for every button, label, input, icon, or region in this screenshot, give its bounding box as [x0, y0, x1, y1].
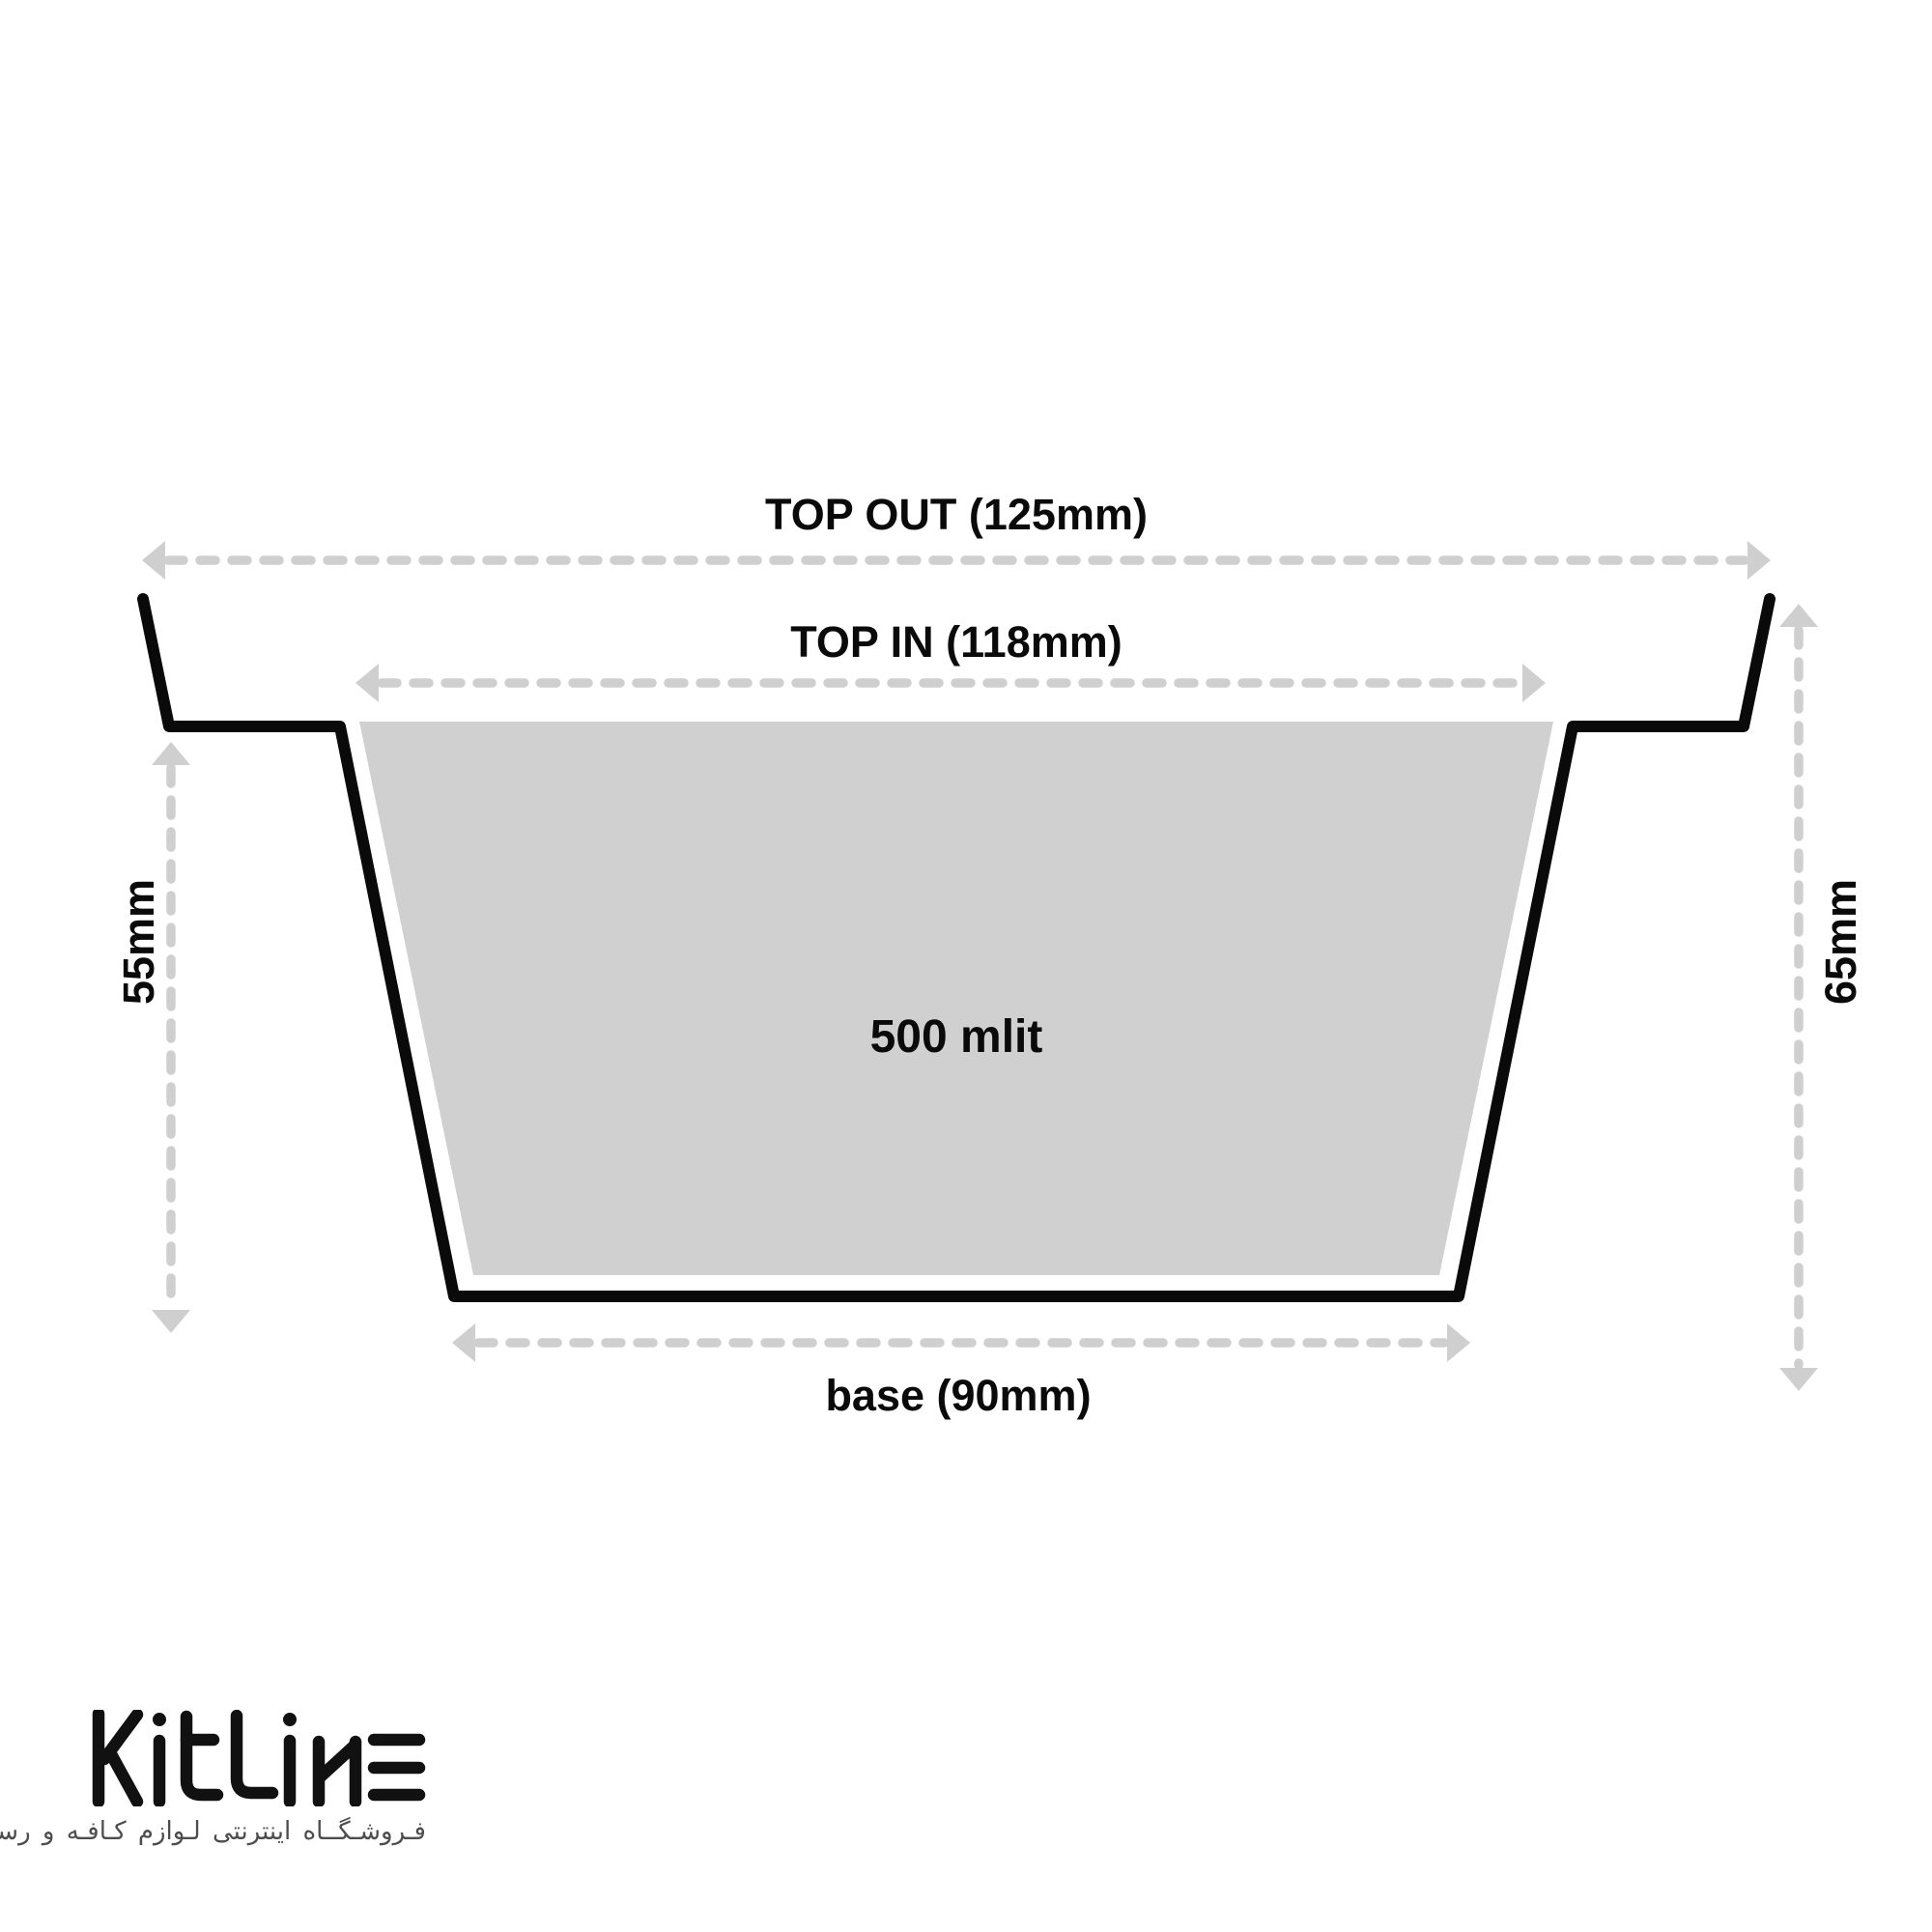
base-arrowhead-right — [1447, 1323, 1470, 1362]
logo-i1-dot — [153, 1713, 166, 1726]
top-out-label: TOP OUT (125mm) — [765, 490, 1148, 539]
logo-k-lower-diagonal — [110, 1752, 137, 1802]
container-cross-section-diagram: TOP OUT (125mm) TOP IN (118mm) 500 mlit … — [0, 0, 1932, 1932]
top-out-arrowhead-right — [1747, 541, 1771, 580]
brand-tagline: فـروشـگــاه اینترنتی لـوازم کـافـه و رست… — [92, 1817, 426, 1846]
outer-height-arrowhead-top — [1779, 604, 1818, 627]
outer-height-label: 65mm — [1816, 879, 1865, 1005]
top-in-dimension: TOP IN (118mm) — [355, 617, 1546, 702]
inner-height-label: 55mm — [114, 879, 163, 1005]
outer-height-dimension: 65mm — [1779, 604, 1865, 1391]
volume-label: 500 mlit — [870, 1011, 1043, 1063]
inner-height-arrowhead-top — [152, 742, 190, 765]
product-dimension-sheet: TOP OUT (125mm) TOP IN (118mm) 500 mlit … — [0, 0, 1932, 1932]
outer-height-arrowhead-bottom — [1779, 1368, 1818, 1391]
kitline-logo — [92, 1710, 426, 1806]
base-label: base (90mm) — [825, 1371, 1091, 1420]
branding-block: فـروشـگــاه اینترنتی لـوازم کـافـه و رست… — [92, 1710, 426, 1846]
top-in-label: TOP IN (118mm) — [790, 617, 1122, 667]
base-arrowhead-left — [452, 1323, 475, 1362]
inner-height-dimension: 55mm — [114, 742, 190, 1333]
logo-i2-dot — [283, 1713, 297, 1726]
container-inner-fill — [359, 722, 1553, 1275]
top-in-arrowhead-right — [1522, 664, 1546, 702]
top-in-arrowhead-left — [355, 664, 379, 702]
logo-l — [237, 1716, 272, 1793]
top-out-arrowhead-left — [142, 541, 165, 580]
logo-t-stem — [186, 1717, 217, 1795]
base-dimension: base (90mm) — [452, 1323, 1470, 1420]
inner-height-arrowhead-bottom — [152, 1310, 190, 1333]
top-out-dimension: TOP OUT (125mm) — [142, 490, 1771, 580]
